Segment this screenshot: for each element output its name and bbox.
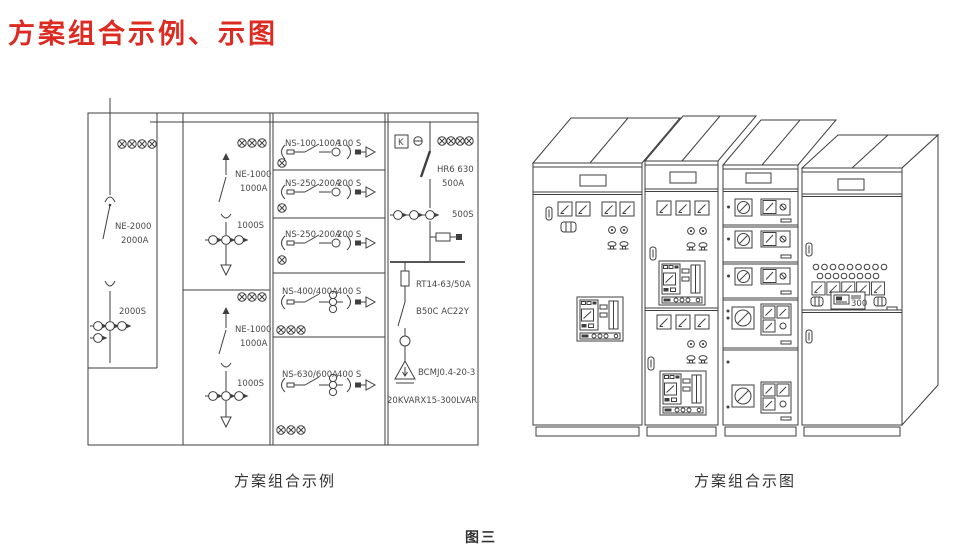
section1-model-label: NE-1000 bbox=[235, 170, 271, 180]
door-handle-icon[interactable] bbox=[650, 247, 656, 260]
cabinet4-side-face bbox=[902, 135, 938, 425]
air-circuit-breaker-icon[interactable] bbox=[660, 371, 706, 415]
meter-icon bbox=[138, 140, 146, 148]
cabinet-1 bbox=[533, 163, 642, 436]
panel-meter-icon bbox=[620, 202, 634, 216]
fuse-icon bbox=[401, 271, 409, 286]
cap-ct-label: 500S bbox=[452, 210, 474, 220]
door-handle-icon[interactable] bbox=[806, 330, 812, 343]
panel-meter-icon bbox=[602, 202, 616, 216]
selector-knob-icon[interactable] bbox=[561, 222, 576, 232]
meter-icon bbox=[258, 139, 266, 147]
meter-icon bbox=[118, 140, 126, 148]
capacitor-delta-icon bbox=[395, 361, 415, 383]
feeder-row-4: NS-400/400A 400 S bbox=[277, 287, 375, 334]
left-diagram-caption: 方案组合示例 bbox=[85, 470, 485, 491]
controller-display-value: 300 bbox=[851, 299, 867, 309]
cabinet-base bbox=[725, 427, 796, 436]
cap-rating-label: 20KVARX15-300LVAR bbox=[387, 396, 477, 406]
air-circuit-breaker-icon[interactable] bbox=[577, 297, 623, 341]
feeder5-ct-label: 400 S bbox=[337, 370, 361, 380]
air-circuit-breaker-icon[interactable] bbox=[659, 261, 705, 305]
feeder1-ct-label: 100 S bbox=[337, 139, 361, 149]
rotary-switch-icon[interactable] bbox=[732, 307, 754, 329]
feeder-row-5: NS-630/600A 400 S bbox=[277, 370, 375, 434]
feeder3-label: NS-250 200A bbox=[285, 230, 341, 240]
indicator-lamp-icon bbox=[621, 227, 628, 234]
single-line-svg: NE-2000 2000A 2000S NE-1000 1000A 1000S … bbox=[85, 95, 485, 455]
cap-switch-amp-label: 500A bbox=[442, 179, 464, 189]
meter-icon bbox=[278, 256, 286, 264]
meter-icon bbox=[278, 204, 286, 212]
switchgear-lineup-drawing: 300 bbox=[530, 95, 942, 450]
cabinet-base bbox=[536, 427, 639, 436]
feeder-row-2: NS-250 200A 200 S bbox=[278, 179, 375, 212]
cabinet-2 bbox=[645, 161, 718, 436]
feeder2-label: NS-250 200A bbox=[285, 179, 341, 189]
panel-meter-icon bbox=[558, 202, 572, 216]
meter-icon bbox=[258, 293, 266, 301]
drawout-breaker-icon bbox=[103, 197, 115, 286]
incoming-ct-label: 2000S bbox=[119, 307, 146, 317]
cabinet-roofs bbox=[533, 116, 938, 168]
cabinet-base bbox=[804, 427, 900, 436]
section2-ct-label: 1000S bbox=[237, 379, 264, 389]
cap-contactor-label: B50C AC22Y bbox=[416, 307, 470, 317]
feeder4-label: NS-400/400A bbox=[282, 287, 338, 297]
door-handle-icon[interactable] bbox=[546, 207, 552, 220]
meter-icon bbox=[248, 139, 256, 147]
cap-switch-model-label: HR6 630 bbox=[437, 165, 474, 175]
meter-icon bbox=[238, 139, 246, 147]
meter-icon bbox=[238, 293, 246, 301]
meter-icon bbox=[128, 140, 136, 148]
section-circuit-1: NE-1000 1000A 1000S bbox=[205, 139, 271, 275]
incoming-circuit: NE-2000 2000A 2000S bbox=[90, 98, 156, 363]
cabinet-3 bbox=[723, 165, 798, 436]
meter-icon bbox=[148, 140, 156, 148]
rotary-switch-icon[interactable] bbox=[735, 199, 752, 216]
power-factor-controller-icon[interactable]: 300 bbox=[831, 292, 867, 309]
cabinet-base bbox=[647, 427, 716, 436]
feeder-rows: NS-100 100A 100 S NS-250 200A 200 S NS-2… bbox=[277, 139, 375, 434]
cabinet-4: 300 bbox=[802, 168, 902, 436]
cap-model-label: BCMJ0.4-20-3 bbox=[418, 368, 475, 378]
isolator-blade-icon bbox=[421, 151, 430, 177]
indicator-lamp-icon bbox=[609, 227, 616, 234]
section1-ct-label: 1000S bbox=[237, 221, 264, 231]
feeder3-ct-label: 200 S bbox=[337, 230, 361, 240]
selector-knob-icon[interactable] bbox=[811, 297, 823, 306]
capacitor-branch: K HR6 630 500A 500S RT14-63/50A B50C AC2… bbox=[387, 122, 477, 406]
feeder-row-1: NS-100 100A 100 S bbox=[278, 139, 375, 167]
figure-number-label: 图三 bbox=[0, 527, 962, 547]
door-handle-icon[interactable] bbox=[648, 357, 654, 370]
feeder-row-3: NS-250 200A 200 S bbox=[278, 230, 375, 264]
rotary-switch-icon[interactable] bbox=[732, 385, 754, 407]
incoming-amp-label: 2000A bbox=[121, 236, 149, 246]
cabinet-drawing-svg: 300 bbox=[530, 95, 942, 450]
feeder5-label: NS-630/600A bbox=[282, 370, 338, 380]
scheme-single-line-diagram: NE-2000 2000A 2000S NE-1000 1000A 1000S … bbox=[85, 95, 485, 455]
contactor-coil-icon bbox=[400, 336, 410, 346]
k-meter-label: K bbox=[398, 138, 404, 148]
meter-icon bbox=[248, 293, 256, 301]
right-drawing-caption: 方案组合示图 bbox=[545, 470, 945, 491]
feeder4-ct-label: 400 S bbox=[337, 287, 361, 297]
rotary-switch-icon[interactable] bbox=[735, 231, 752, 248]
section-circuit-2: NE-1000 1000A 1000S bbox=[205, 293, 271, 427]
feeder2-ct-label: 200 S bbox=[337, 179, 361, 189]
door-handle-icon[interactable] bbox=[806, 243, 812, 256]
feeder1-label: NS-100 100A bbox=[285, 139, 341, 149]
section1-amp-label: 1000A bbox=[240, 184, 268, 194]
meter-icon bbox=[278, 159, 286, 167]
ct-group-icon bbox=[90, 322, 132, 343]
section2-amp-label: 1000A bbox=[240, 339, 268, 349]
incoming-model-label: NE-2000 bbox=[115, 222, 151, 232]
page-title: 方案组合示例、示图 bbox=[8, 12, 278, 51]
section2-model-label: NE-1000 bbox=[235, 325, 271, 335]
fuse-icon bbox=[436, 233, 450, 241]
rotary-switch-icon[interactable] bbox=[735, 268, 752, 285]
panel-meter-icon bbox=[576, 202, 590, 216]
energy-meter-icon bbox=[414, 137, 422, 145]
selector-knob-icon[interactable] bbox=[874, 297, 886, 306]
cap-fuse-label: RT14-63/50A bbox=[416, 280, 471, 290]
